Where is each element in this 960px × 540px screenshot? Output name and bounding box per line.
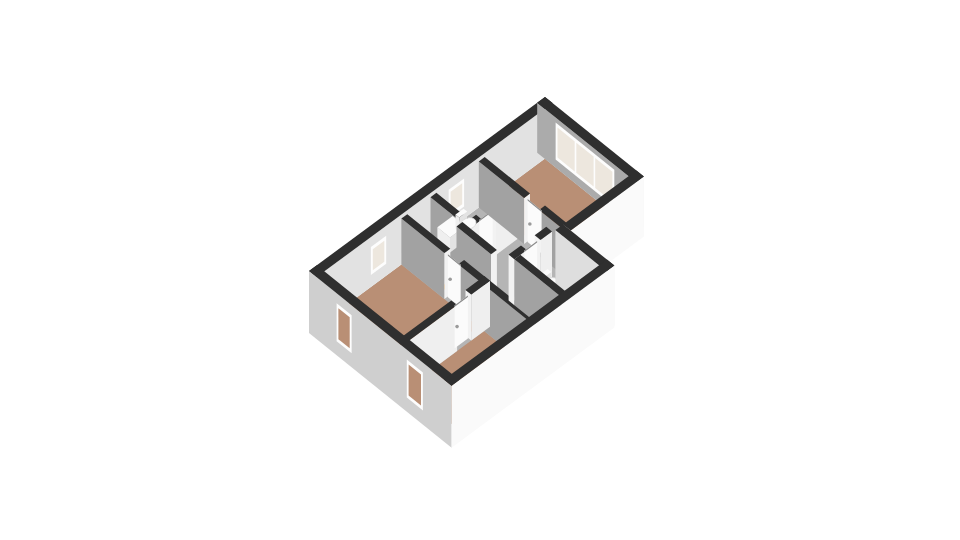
floor-plan-3d-view — [0, 0, 960, 540]
floor-plan-canvas — [0, 0, 960, 540]
